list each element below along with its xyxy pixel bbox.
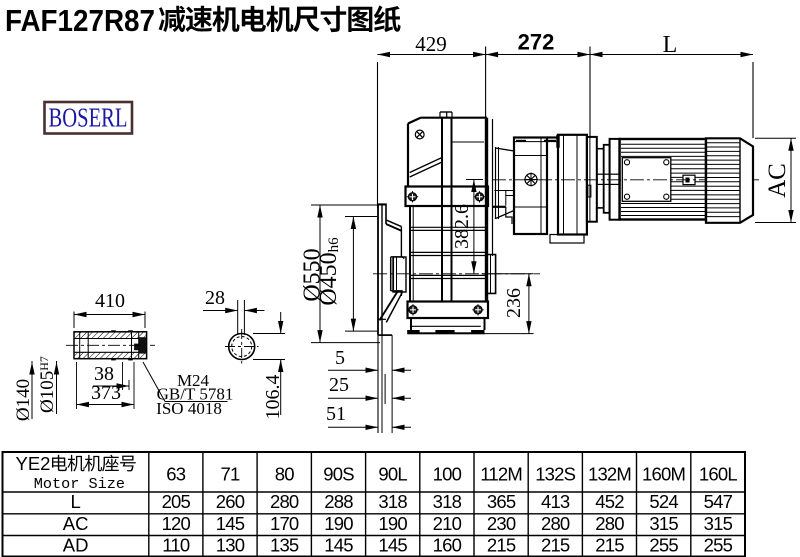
svg-text:260: 260 [216,491,245,512]
svg-text:Ø140: Ø140 [13,379,34,421]
svg-text:BOSERL: BOSERL [49,103,128,133]
svg-text:215: 215 [595,535,624,556]
svg-text:429: 429 [415,32,447,56]
svg-text:51: 51 [326,403,346,425]
svg-text:110: 110 [162,535,190,556]
svg-text:365: 365 [487,491,516,512]
svg-text:ISO 4018: ISO 4018 [156,399,222,418]
svg-text:382.6: 382.6 [451,204,473,249]
svg-text:145: 145 [378,535,407,556]
svg-text:272: 272 [518,30,555,55]
svg-text:145: 145 [324,535,353,556]
svg-text:112M: 112M [480,464,522,485]
svg-text:236: 236 [503,288,525,318]
svg-text:318: 318 [433,491,462,512]
svg-text:524: 524 [649,491,678,512]
svg-text:547: 547 [704,491,733,512]
svg-text:AD: AD [63,535,89,556]
svg-text:210: 210 [433,513,462,534]
svg-text:315: 315 [649,513,678,534]
svg-text:190: 190 [324,513,353,534]
svg-text:71: 71 [221,464,240,485]
svg-text:L: L [663,32,678,58]
svg-text:160L: 160L [699,464,737,485]
svg-text:FAF127R87: FAF127R87 [5,3,155,38]
svg-text:106.4: 106.4 [262,375,284,420]
svg-text:215: 215 [541,535,570,556]
svg-text:132M: 132M [588,464,631,485]
svg-text:145: 145 [216,513,245,534]
svg-text:255: 255 [649,535,678,556]
svg-text:132S: 132S [535,464,575,485]
svg-text:100: 100 [433,464,462,485]
svg-text:135: 135 [270,535,299,556]
svg-text:315: 315 [704,513,733,534]
svg-text:28: 28 [205,287,225,309]
svg-text:AC: AC [764,163,791,198]
svg-text:280: 280 [270,491,299,512]
svg-text:373: 373 [91,382,121,404]
svg-text:25: 25 [329,374,349,396]
svg-text:215: 215 [487,535,516,556]
svg-text:160M: 160M [642,464,685,485]
svg-text:280: 280 [595,513,624,534]
svg-text:130: 130 [216,535,245,556]
svg-text:255: 255 [704,535,733,556]
svg-text:AC: AC [63,513,89,534]
svg-text:120: 120 [162,513,191,534]
svg-text:90S: 90S [323,464,354,485]
svg-text:63: 63 [166,464,185,485]
svg-text:452: 452 [595,491,624,512]
svg-text:160: 160 [433,535,462,556]
svg-text:410: 410 [95,290,125,312]
svg-text:80: 80 [275,464,294,485]
svg-text:288: 288 [324,491,353,512]
svg-text:YE2: YE2 [16,453,51,474]
svg-text:318: 318 [378,491,407,512]
svg-text:280: 280 [541,513,570,534]
svg-text:413: 413 [541,491,570,512]
svg-text:205: 205 [162,491,191,512]
svg-text:230: 230 [487,513,516,534]
svg-text:190: 190 [378,513,407,534]
svg-text:90L: 90L [378,464,407,485]
svg-text:170: 170 [270,513,299,534]
svg-text:5: 5 [335,347,345,369]
svg-text:L: L [70,491,80,512]
